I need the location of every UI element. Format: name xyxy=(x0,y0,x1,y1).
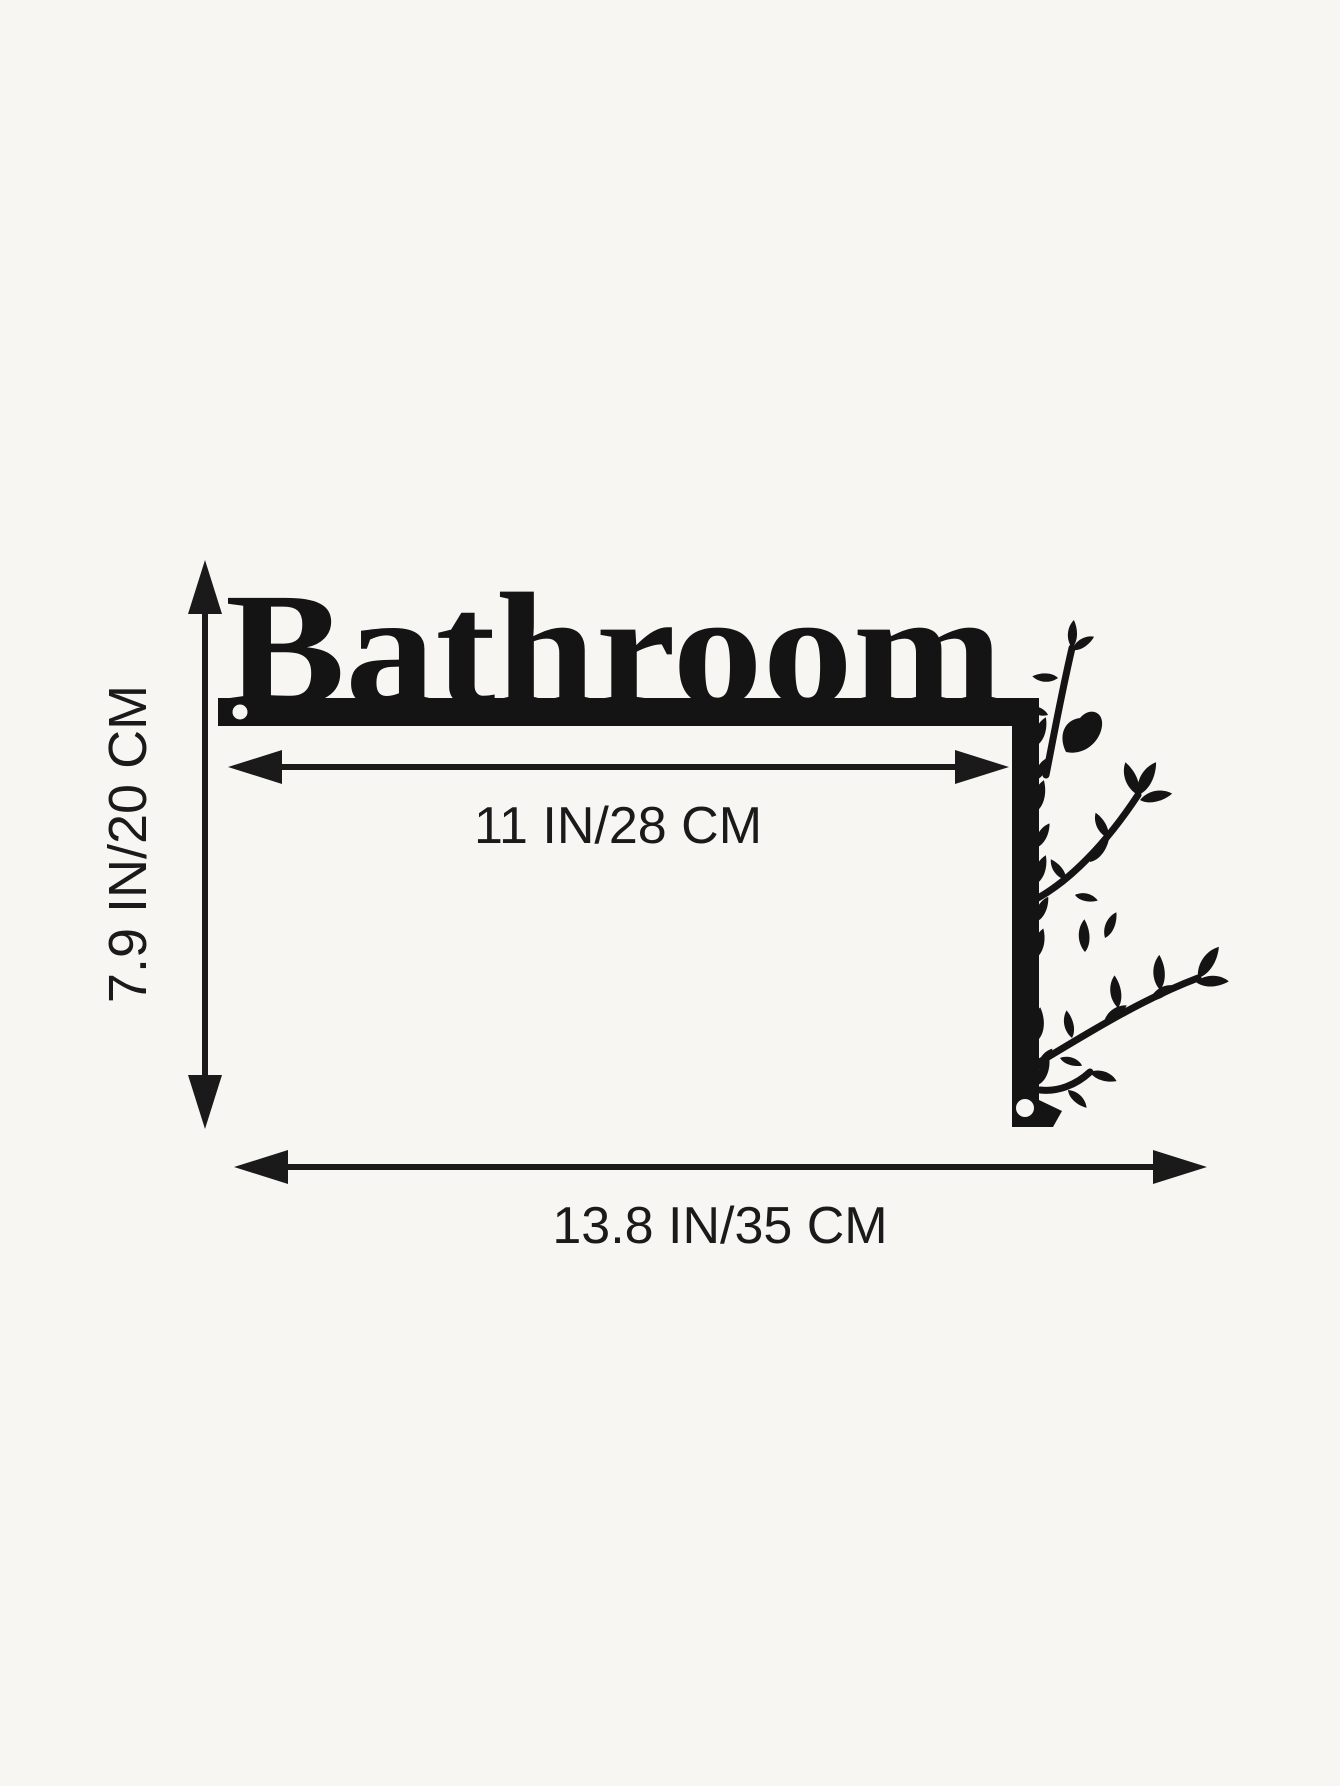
sign-horizontal-bar xyxy=(218,698,1038,726)
height-label: 7.9 IN/20 CM xyxy=(98,685,158,1003)
background xyxy=(0,0,1340,1786)
mounting-hole-left xyxy=(233,705,248,720)
product-dimension-diagram: Bathroom xyxy=(0,0,1340,1786)
inner-width-label: 11 IN/28 CM xyxy=(474,797,762,855)
total-width-label: 13.8 IN/35 CM xyxy=(552,1197,887,1255)
mounting-hole-bottom xyxy=(1016,1099,1034,1117)
diagram-canvas: Bathroom xyxy=(0,0,1340,1786)
